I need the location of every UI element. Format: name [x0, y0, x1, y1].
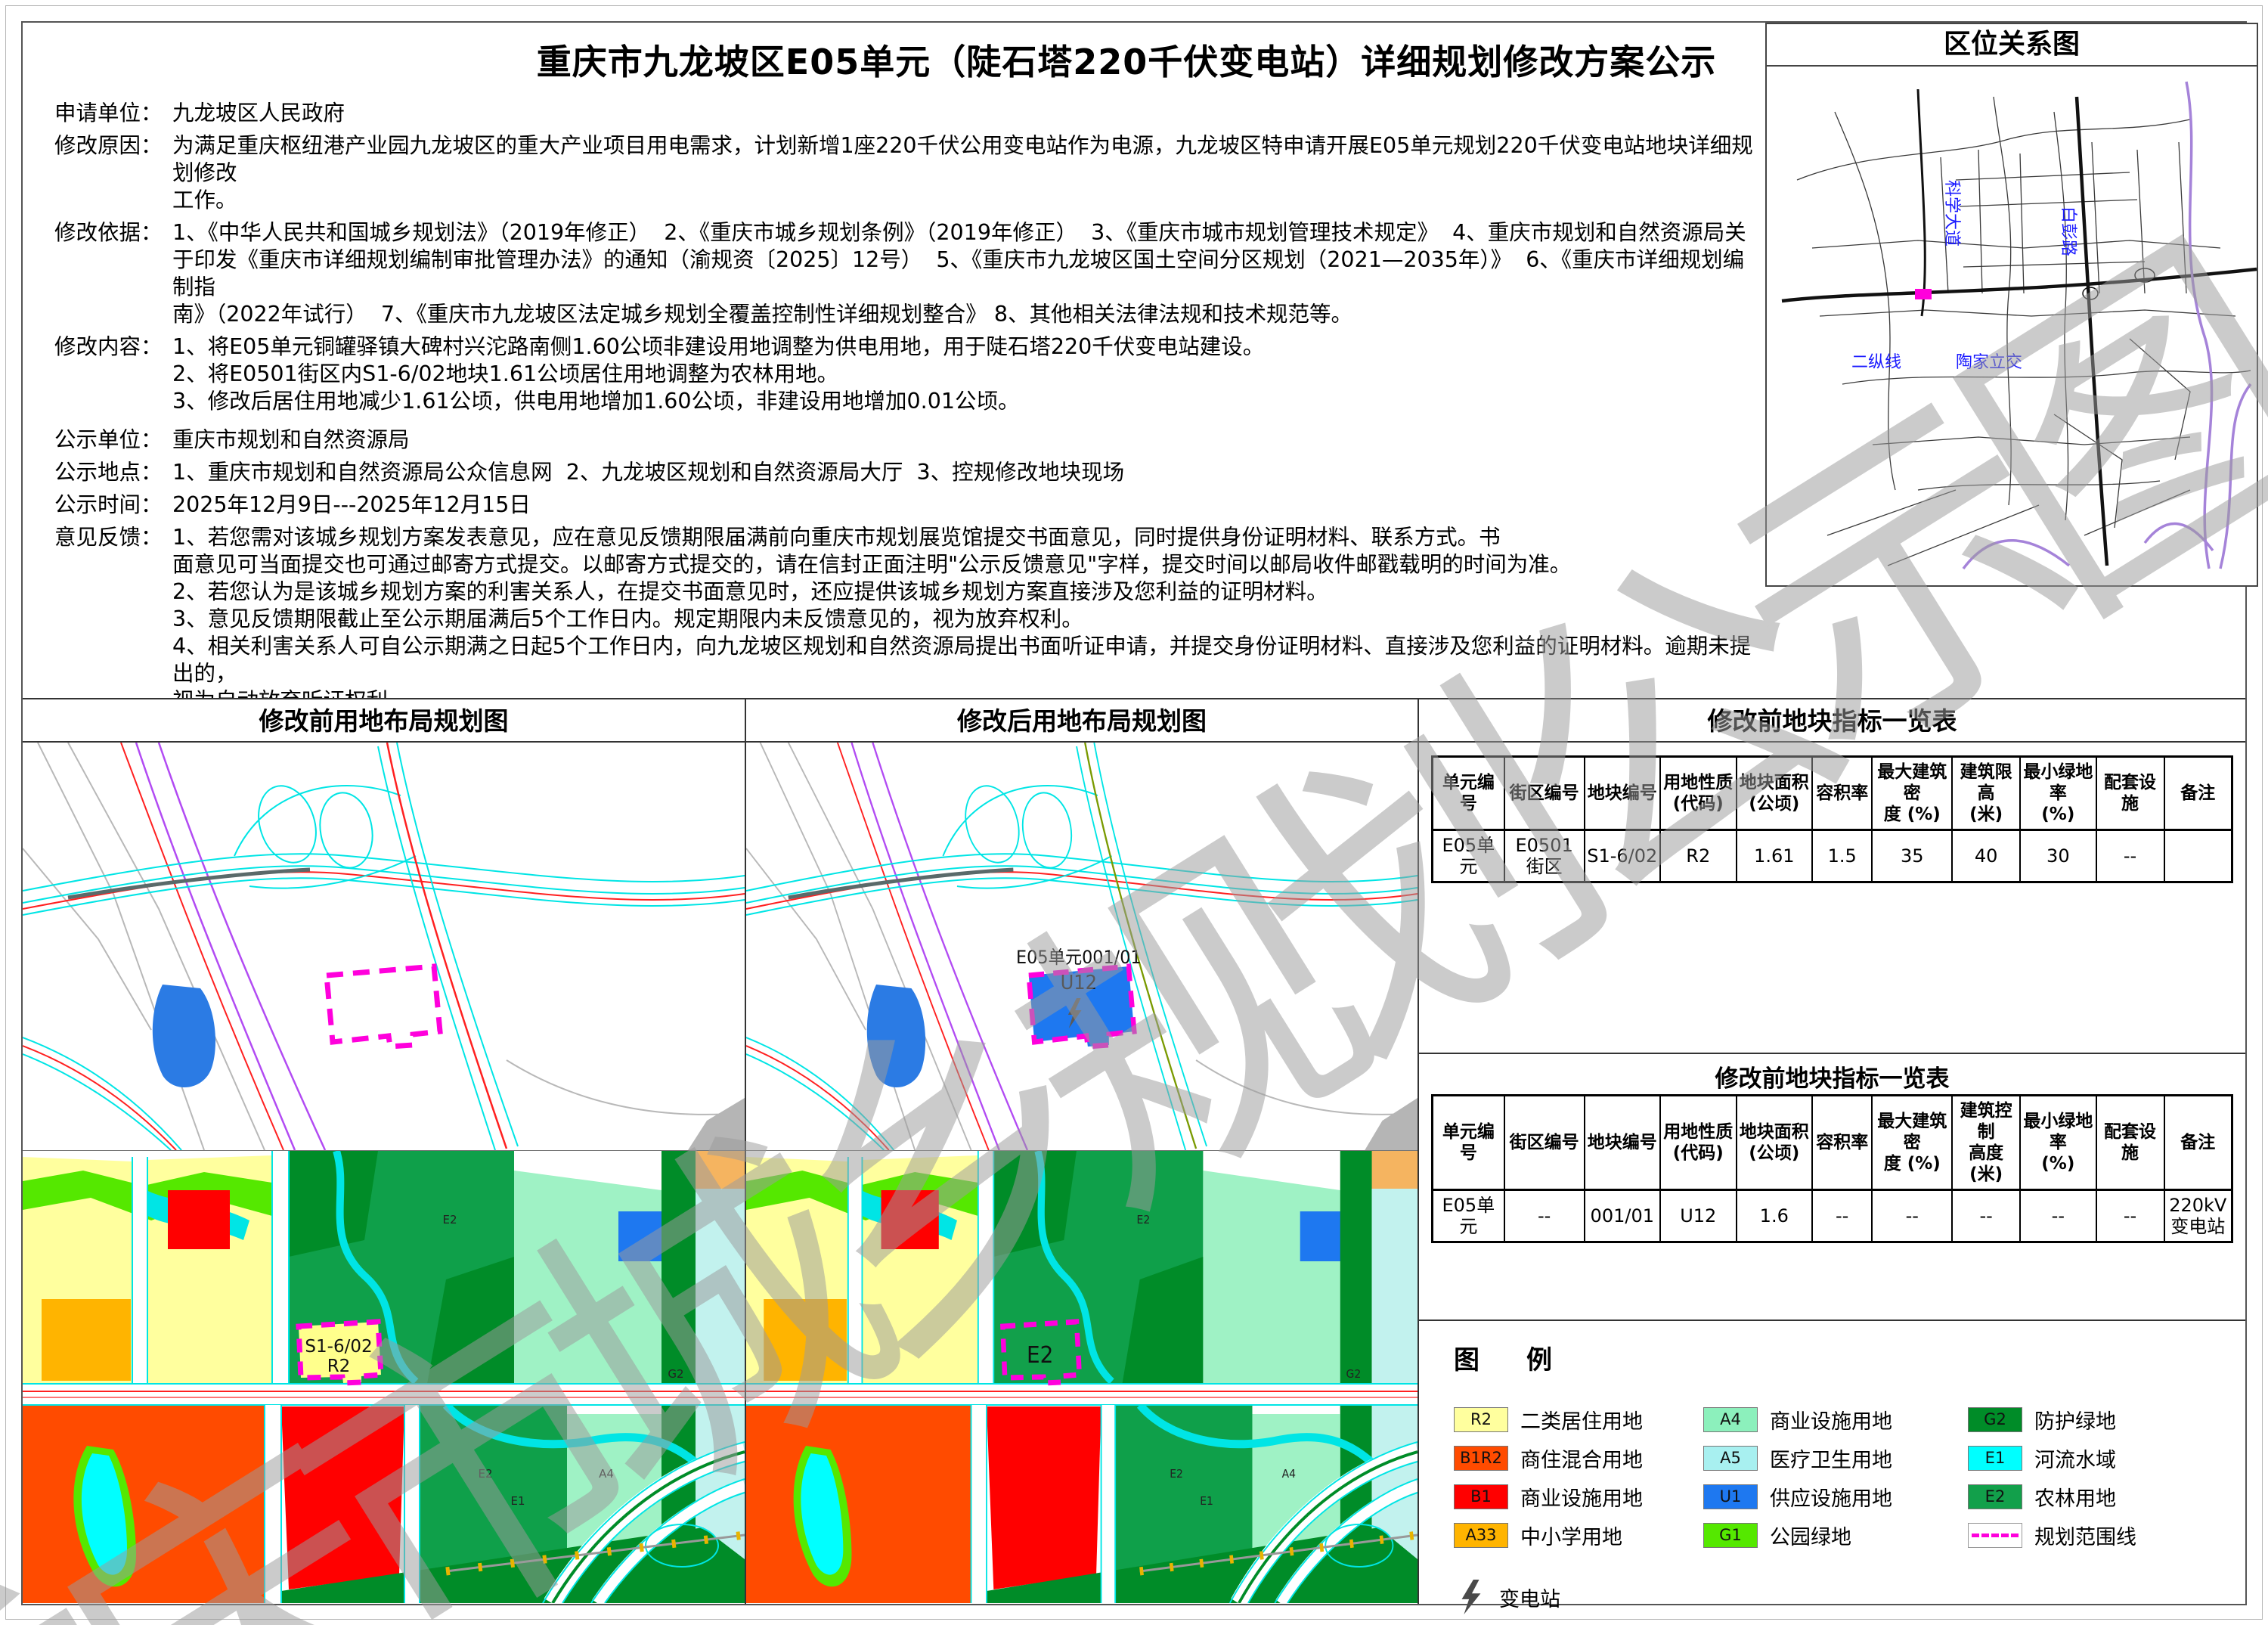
- legend-item-label: 商住混合用地: [1520, 1444, 1643, 1473]
- legend-item: B1R2 商住混合用地: [1454, 1440, 1703, 1475]
- table-cell: 220kV变电站: [2164, 1190, 2232, 1242]
- legend-substation-label: 变电站: [1499, 1583, 1560, 1612]
- table-cell: 35: [1872, 830, 1952, 882]
- table-cell: R2: [1660, 830, 1737, 882]
- location-map-title: 区位关系图: [1767, 24, 2257, 67]
- legend-color-swatch: A5: [1703, 1446, 1758, 1471]
- table-cell: E0501街区: [1504, 830, 1585, 882]
- panel-after-plan: 修改后用地布局规划图: [745, 699, 1417, 1604]
- zone-u1: [618, 1211, 662, 1261]
- legend-item: R2 二类居住用地: [1454, 1402, 1703, 1437]
- field-label: 修改内容：: [54, 333, 172, 415]
- legend-color-swatch: A4: [1703, 1407, 1758, 1432]
- field-value: 2025年12月9日---2025年12月15日: [172, 492, 1755, 519]
- table-cell: --: [1872, 1190, 1952, 1242]
- zone-a4: [1203, 1171, 1340, 1384]
- highlight-parcel-after: E2: [1002, 1322, 1079, 1383]
- table-cell: U12: [1660, 1190, 1737, 1242]
- svg-text:E2: E2: [1137, 1214, 1151, 1227]
- info-row-applicant: 申请单位： 九龙坡区人民政府: [54, 100, 1755, 127]
- landuse-map-before: E2 E2 E1 A4 G2 S1-6/02 R2: [23, 1151, 745, 1603]
- info-row-period: 公示时间： 2025年12月9日---2025年12月15日: [54, 492, 1755, 519]
- table-row: E05单元--001/01U121.6----------220kV变电站: [1433, 1190, 2232, 1242]
- svg-text:A4: A4: [1282, 1468, 1296, 1481]
- before-road-map: [23, 743, 745, 1151]
- table-header-cell: 街区编号: [1504, 1096, 1585, 1190]
- table-row: E05单元E0501街区S1-6/02R21.611.5354030--: [1433, 830, 2232, 882]
- field-value: 为满足重庆枢纽港产业园九龙坡区的重大产业项目用电需求，计划新增1座220千伏公用…: [172, 132, 1755, 214]
- legend-color-swatch: U1: [1703, 1484, 1758, 1509]
- table-cell: 1.5: [1812, 830, 1872, 882]
- legend-color-swatch: R2: [1454, 1407, 1508, 1432]
- table-after-title: 修改前地块指标一览表: [1419, 1059, 2245, 1093]
- svg-text:G2: G2: [1346, 1369, 1362, 1382]
- field-value: 1、将E05单元铜罐驿镇大碑村兴沱路南侧1.60公顷非建设用地调整为供电用地，用…: [172, 333, 1755, 415]
- right-panel-divider-1: [1419, 1053, 2245, 1054]
- legend-item: B1 商业设施用地: [1454, 1479, 1703, 1514]
- legend-item: A5 医疗卫生用地: [1703, 1440, 1968, 1475]
- zone-b1: [281, 1406, 404, 1589]
- table-cell: 40: [1952, 830, 2020, 882]
- legend-dash-swatch: [1968, 1523, 2022, 1548]
- before-landuse-map: E2 E2 E1 A4 G2 S1-6/02 R2: [23, 1151, 745, 1603]
- table-header-cell: 地块编号: [1585, 1096, 1661, 1190]
- table-header-cell: 最小绿地率 (%): [2020, 1096, 2096, 1190]
- legend-item: G1 公园绿地: [1703, 1518, 1968, 1552]
- legend-item: A33 中小学用地: [1454, 1518, 1703, 1552]
- location-relation-box: 区位关系图: [1765, 23, 2258, 587]
- parcel-upper-name: E05单元001/01: [1016, 947, 1142, 968]
- legend-item-label: 防护绿地: [2034, 1405, 2116, 1434]
- legend-item-label: 二类居住用地: [1520, 1405, 1643, 1434]
- legend-item-label: 中小学用地: [1520, 1521, 1622, 1550]
- legend-color-swatch: A33: [1454, 1523, 1508, 1548]
- svg-text:E2: E2: [442, 1213, 457, 1227]
- table-cell: E05单元: [1433, 1190, 1504, 1242]
- field-label: 公示单位：: [54, 426, 172, 454]
- legend-color-swatch: B1R2: [1454, 1446, 1508, 1471]
- after-road-map: E05单元001/01 U12: [746, 743, 1417, 1151]
- table-header-cell: 单元编号: [1433, 1096, 1504, 1190]
- legend-color-swatch: E1: [1968, 1446, 2022, 1471]
- road-label-erzongxian: 二纵线: [1851, 353, 1901, 372]
- table-header-cell: 最大建筑密 度 (%): [1872, 1096, 1952, 1190]
- table-cell: --: [2020, 1190, 2096, 1242]
- legend-substation-row: 变电站: [1460, 1580, 2235, 1614]
- legend-item-label: 医疗卫生用地: [1770, 1444, 1892, 1473]
- table-cell: --: [1952, 1190, 2020, 1242]
- major-roads: [1782, 89, 2257, 566]
- legend-grid: R2 二类居住用地B1R2 商住混合用地B1 商业设施用地A33 中小学用地A4…: [1454, 1402, 2235, 1552]
- right-panel-divider-2: [1419, 1320, 2245, 1321]
- field-label: 申请单位：: [54, 100, 172, 127]
- table-header-cell: 建筑限高 (米): [1952, 757, 2020, 830]
- planning-notice-page: 重庆市九龙坡区E05单元（陡石塔220千伏变电站）详细规划修改方案公示 申请单位…: [0, 0, 2268, 1625]
- field-value: 九龙坡区人民政府: [172, 100, 1755, 127]
- table-header-cell: 容积率: [1812, 757, 1872, 830]
- zone-b1: [168, 1190, 230, 1249]
- table-cell: 1.61: [1737, 830, 1813, 882]
- field-label: 修改依据：: [54, 219, 172, 328]
- legend-item-label: 农林用地: [2034, 1482, 2116, 1512]
- info-row-locations: 公示地点： 1、重庆市规划和自然资源局公众信息网 2、九龙坡区规划和自然资源局大…: [54, 459, 1755, 486]
- panel-tables-legend: 修改前地块指标一览表 单元编号街区编号地块编号用地性质 (代码)地块面积 (公顷…: [1417, 699, 2245, 1604]
- zone-b1r2: [746, 1405, 971, 1603]
- table-after-wrap: 单元编号街区编号地块编号用地性质 (代码)地块面积 (公顷)容积率最大建筑密 度…: [1431, 1094, 2233, 1243]
- before-map-title: 修改前用地布局规划图: [23, 699, 745, 743]
- parcel-upper-use: U12: [1061, 971, 1097, 994]
- legend-item: A4 商业设施用地: [1703, 1402, 1968, 1437]
- legend-color-swatch: G1: [1703, 1523, 1758, 1548]
- zone-u1: [1300, 1211, 1341, 1261]
- table-cell: 30: [2020, 830, 2096, 882]
- table-header-cell: 街区编号: [1504, 757, 1585, 830]
- svg-text:E2: E2: [1170, 1468, 1183, 1481]
- info-row-content: 修改内容： 1、将E05单元铜罐驿镇大碑村兴沱路南侧1.60公顷非建设用地调整为…: [54, 333, 1755, 415]
- panel-before-plan: 修改前用地布局规划图: [23, 699, 745, 1604]
- svg-text:E1: E1: [510, 1494, 525, 1508]
- legend-item-label: 供应设施用地: [1770, 1482, 1892, 1512]
- road-map-after: E05单元001/01 U12: [746, 743, 1417, 1150]
- table-cell: --: [2096, 830, 2164, 882]
- road-label-kexue-avenue: 科学大道: [1942, 180, 1961, 247]
- lightning-icon: [1460, 1580, 1483, 1614]
- road-label-baipeng-road: 白彭路: [2059, 206, 2077, 256]
- table-cell: E05单元: [1433, 830, 1504, 882]
- parcel-lower-use: R2: [327, 1357, 351, 1376]
- field-label: 公示地点：: [54, 459, 172, 486]
- road-map-before: [23, 743, 745, 1150]
- indicator-table-before: 单元编号街区编号地块编号用地性质 (代码)地块面积 (公顷)容积率最大建筑密 度…: [1431, 755, 2233, 883]
- zone-a4: [514, 1171, 661, 1384]
- pond: [153, 985, 215, 1087]
- after-landuse-map: E2 E2 E1 A4 G2 E2: [746, 1151, 1417, 1603]
- table-header-cell: 配套设施: [2096, 757, 2164, 830]
- road-network: [1797, 97, 2251, 566]
- table-header-cell: 备注: [2164, 1096, 2232, 1190]
- legend-item: E2 农林用地: [1968, 1479, 2235, 1514]
- svg-text:E2: E2: [478, 1467, 492, 1481]
- legend-color-swatch: G2: [1968, 1407, 2022, 1432]
- table-header-cell: 单元编号: [1433, 757, 1504, 830]
- pond: [867, 985, 925, 1087]
- zone-b1: [881, 1190, 939, 1249]
- legend-item-label: 规划范围线: [2034, 1521, 2136, 1550]
- table-cell: 1.6: [1737, 1190, 1813, 1242]
- table-cell: S1-6/02: [1585, 830, 1661, 882]
- parcel-lower-code: E2: [1027, 1341, 1053, 1368]
- legend-color-swatch: B1: [1454, 1484, 1508, 1509]
- zone-a33: [42, 1299, 131, 1381]
- field-value: 重庆市规划和自然资源局: [172, 426, 1755, 454]
- info-row-reason: 修改原因： 为满足重庆枢纽港产业园九龙坡区的重大产业项目用电需求，计划新增1座2…: [54, 132, 1755, 214]
- field-label: 公示时间：: [54, 492, 172, 519]
- legend-item-label: 公园绿地: [1770, 1521, 1851, 1550]
- table-before-wrap: 单元编号街区编号地块编号用地性质 (代码)地块面积 (公顷)容积率最大建筑密 度…: [1431, 755, 2233, 883]
- field-value: 1、重庆市规划和自然资源局公众信息网 2、九龙坡区规划和自然资源局大厅 3、控规…: [172, 459, 1755, 486]
- table-header-cell: 最小绿地率 (%): [2020, 757, 2096, 830]
- table-cell: --: [1504, 1190, 1585, 1242]
- table-cell: [2164, 830, 2232, 882]
- parcel-lower-code: S1-6/02: [305, 1337, 372, 1357]
- table-header-cell: 建筑控制 高度 (米): [1952, 1096, 2020, 1190]
- info-row-agency: 公示单位： 重庆市规划和自然资源局: [54, 426, 1755, 454]
- legend-item: E1 河流水域: [1968, 1440, 2235, 1475]
- legend-title: 图 例: [1454, 1339, 2235, 1376]
- landuse-map-after: E2 E2 E1 A4 G2 E2: [746, 1151, 1417, 1603]
- field-label: 修改原因：: [54, 132, 172, 214]
- legend-item-label: 河流水域: [2034, 1444, 2116, 1473]
- zone-b1r2: [23, 1405, 265, 1603]
- legend-item: U1 供应设施用地: [1703, 1479, 1968, 1514]
- svg-text:G2: G2: [668, 1367, 683, 1381]
- legend-item-label: 商业设施用地: [1770, 1405, 1892, 1434]
- table-header-cell: 用地性质 (代码): [1660, 1096, 1737, 1190]
- table-header-cell: 配套设施: [2096, 1096, 2164, 1190]
- notice-info-block: 申请单位： 九龙坡区人民政府 修改原因： 为满足重庆枢纽港产业园九龙坡区的重大产…: [54, 100, 1755, 774]
- bottom-section: 修改前用地布局规划图: [23, 698, 2245, 1604]
- table-header-cell: 最大建筑密 度 (%): [1872, 757, 1952, 830]
- legend-item: 规划范围线: [1968, 1518, 2235, 1552]
- table-before-title: 修改前地块指标一览表: [1419, 699, 2245, 743]
- road-label-taojia-interchange: 陶家立交: [1956, 353, 2022, 372]
- legend-item: G2 防护绿地: [1968, 1402, 2235, 1437]
- indicator-table-after: 单元编号街区编号地块编号用地性质 (代码)地块面积 (公顷)容积率最大建筑密 度…: [1431, 1094, 2233, 1243]
- table-cell: --: [2096, 1190, 2164, 1242]
- zone-a33: [764, 1299, 847, 1381]
- table-header-cell: 备注: [2164, 757, 2232, 830]
- after-map-title: 修改后用地布局规划图: [746, 699, 1417, 743]
- legend-block: 图 例 R2 二类居住用地B1R2 商住混合用地B1 商业设施用地A33 中小学…: [1454, 1339, 2235, 1614]
- legend-color-swatch: E2: [1968, 1484, 2022, 1509]
- table-cell: 001/01: [1585, 1190, 1661, 1242]
- legend-item-label: 商业设施用地: [1520, 1482, 1643, 1512]
- field-value: 1、《中华人民共和国城乡规划法》（2019年修正） 2、《重庆市城乡规划条例》（…: [172, 219, 1755, 328]
- table-header-cell: 地块面积 (公顷): [1737, 757, 1813, 830]
- table-header-cell: 用地性质 (代码): [1660, 757, 1737, 830]
- table-header-cell: 地块面积 (公顷): [1737, 1096, 1813, 1190]
- table-header-cell: 容积率: [1812, 1096, 1872, 1190]
- table-header-cell: 地块编号: [1585, 757, 1661, 830]
- highlight-parcel-before: S1-6/02 R2: [299, 1322, 381, 1383]
- site-highlight-marker: [1915, 289, 1932, 299]
- svg-text:A4: A4: [599, 1467, 614, 1481]
- location-map: 科学大道 白彭路 二纵线 陶家立交: [1767, 67, 2257, 582]
- river-lines: [1963, 82, 2251, 569]
- svg-text:E1: E1: [1200, 1496, 1213, 1509]
- info-row-basis: 修改依据： 1、《中华人民共和国城乡规划法》（2019年修正） 2、《重庆市城乡…: [54, 219, 1755, 328]
- zone-b1: [987, 1406, 1101, 1589]
- table-cell: --: [1812, 1190, 1872, 1242]
